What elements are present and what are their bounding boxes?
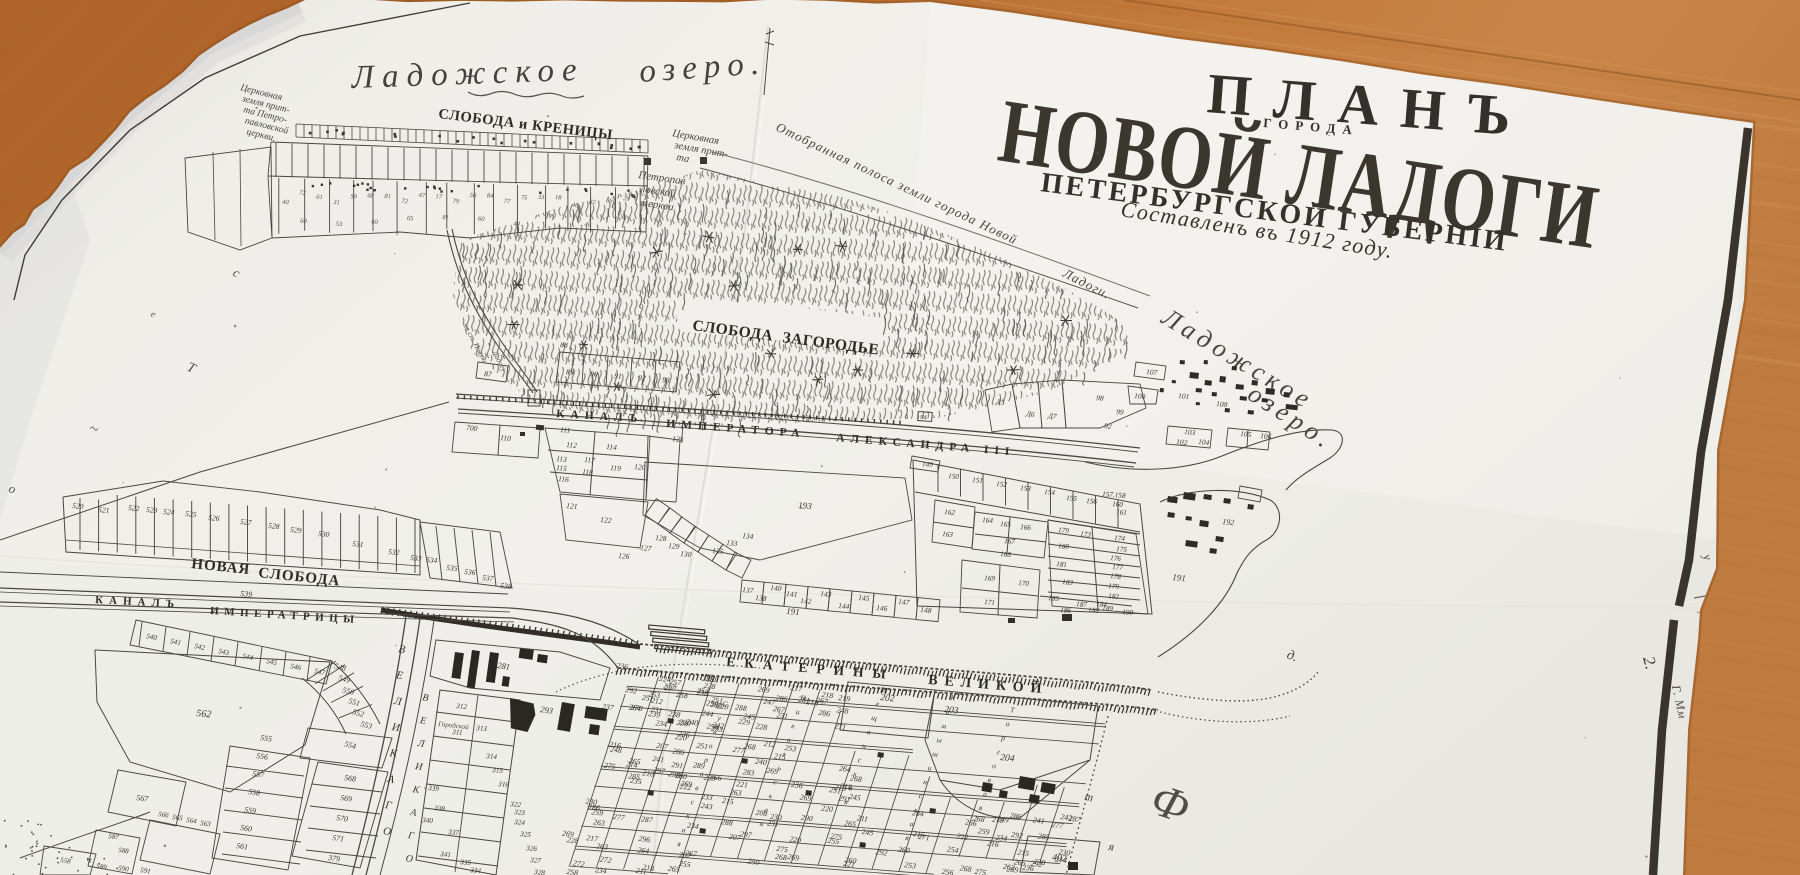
svg-text:185: 185 [1048,594,1060,603]
svg-text:253: 253 [904,860,917,871]
svg-text:188: 188 [1088,606,1100,615]
svg-text:187: 187 [1076,600,1088,609]
svg-text:Д6: Д6 [1025,409,1036,419]
svg-text:525: 525 [185,509,197,519]
svg-text:156: 156 [1086,497,1098,506]
svg-text:259: 259 [977,826,990,837]
svg-text:217: 217 [790,683,804,694]
svg-text:587: 587 [108,832,120,841]
svg-text:334: 334 [469,866,482,875]
svg-text:314: 314 [485,752,498,761]
svg-text:129: 129 [668,541,680,551]
svg-text:288: 288 [721,817,734,828]
svg-text:339: 339 [427,784,440,793]
svg-text:154: 154 [1044,488,1056,497]
svg-text:527: 527 [240,517,252,527]
svg-text:559: 559 [244,805,257,816]
svg-text:178: 178 [1110,572,1122,581]
svg-text:169: 169 [984,574,996,583]
svg-text:153: 153 [1020,484,1032,493]
svg-text:231: 231 [766,818,779,829]
svg-text:98: 98 [1096,393,1105,403]
svg-text:286: 286 [588,802,601,813]
svg-text:244: 244 [701,708,714,719]
svg-text:258: 258 [676,690,689,701]
svg-text:561: 561 [236,841,249,852]
svg-text:292: 292 [625,685,638,696]
svg-text:236: 236 [791,780,804,791]
svg-text:143: 143 [820,589,832,599]
svg-text:265: 265 [628,756,641,767]
svg-text:121: 121 [566,501,578,511]
svg-text:234: 234 [655,718,668,729]
svg-text:588: 588 [118,846,130,855]
svg-text:107: 107 [1146,367,1158,377]
svg-text:292: 292 [875,847,888,858]
svg-text:337: 337 [447,828,460,837]
svg-text:570: 570 [336,813,349,824]
svg-text:700: 700 [466,423,478,433]
svg-text:166: 166 [1020,523,1032,532]
svg-text:115: 115 [556,463,568,473]
svg-text:564: 564 [186,816,198,825]
svg-text:283: 283 [742,767,755,778]
svg-text:532: 532 [388,547,400,557]
svg-text:523: 523 [146,505,158,515]
svg-text:191: 191 [786,606,800,617]
svg-text:530: 530 [318,529,330,539]
svg-text:533: 533 [410,553,422,563]
svg-text:567: 567 [136,793,150,804]
svg-text:239: 239 [648,709,661,720]
svg-text:138: 138 [755,593,767,603]
svg-text:251: 251 [696,741,709,752]
svg-text:280: 280 [675,771,688,782]
svg-text:323: 323 [513,808,526,817]
svg-text:262: 262 [679,850,692,861]
svg-text:212: 212 [763,739,776,750]
svg-text:137: 137 [742,585,754,595]
svg-text:189: 189 [1102,604,1114,613]
svg-text:245: 245 [861,827,874,838]
svg-text:221: 221 [843,859,856,870]
svg-text:325: 325 [519,830,532,839]
svg-text:220: 220 [789,834,802,845]
svg-text:556: 556 [256,751,269,762]
svg-text:89: 89 [566,367,575,377]
svg-text:566: 566 [158,810,170,819]
svg-text:563: 563 [200,819,212,828]
svg-text:316: 316 [497,780,510,789]
svg-text:215: 215 [722,796,735,807]
svg-text:524: 524 [163,507,175,517]
svg-text:221: 221 [736,779,749,790]
svg-text:93: 93 [662,375,671,385]
svg-text:271: 271 [917,832,930,843]
svg-text:118: 118 [582,467,594,477]
svg-text:264: 264 [637,845,650,856]
svg-text:101: 101 [1178,391,1190,401]
svg-text:243: 243 [700,801,713,812]
svg-text:218: 218 [642,863,655,874]
svg-text:568: 568 [344,773,357,784]
svg-text:589: 589 [96,862,108,871]
svg-text:275: 275 [830,831,843,842]
svg-text:218: 218 [821,690,834,701]
svg-text:263: 263 [596,841,609,852]
svg-text:258: 258 [566,867,579,875]
svg-text:240: 240 [686,717,699,728]
svg-text:293: 293 [540,704,554,716]
svg-text:536: 536 [464,567,476,577]
svg-text:119: 119 [610,463,622,473]
svg-text:286: 286 [1009,811,1022,822]
svg-text:228: 228 [755,721,768,732]
svg-text:177: 177 [1112,563,1124,572]
svg-text:202: 202 [880,693,895,704]
svg-text:176: 176 [1110,554,1122,563]
svg-text:220: 220 [821,803,834,814]
svg-text:292: 292 [1011,830,1024,841]
svg-text:90: 90 [590,369,599,379]
svg-text:170: 170 [1018,579,1030,588]
svg-text:341: 341 [439,850,452,859]
svg-text:291: 291 [671,760,684,771]
svg-text:133: 133 [726,538,738,548]
svg-text:190: 190 [1122,608,1134,617]
svg-text:238: 238 [668,709,681,720]
svg-text:539: 539 [240,589,253,599]
svg-text:216: 216 [987,839,1000,850]
svg-text:269: 269 [562,829,575,840]
svg-text:241: 241 [1032,815,1045,826]
svg-text:142: 142 [800,596,812,606]
svg-text:296: 296 [638,834,651,845]
svg-text:236: 236 [1022,863,1035,874]
svg-text:535: 535 [446,563,458,573]
svg-text:104: 104 [1198,437,1210,447]
svg-text:286: 286 [818,708,831,719]
svg-text:164: 164 [982,516,994,525]
svg-text:275: 275 [974,867,987,875]
svg-text:569: 569 [340,793,353,804]
svg-text:529: 529 [290,525,302,535]
svg-text:182: 182 [1108,592,1120,601]
svg-text:179: 179 [1108,582,1120,591]
svg-text:168: 168 [1000,550,1012,559]
svg-text:61: 61 [316,194,323,202]
svg-text:590: 590 [118,864,130,873]
svg-text:145: 145 [858,593,870,603]
svg-text:379: 379 [327,853,341,864]
svg-text:147: 147 [898,597,910,607]
svg-text:Д7: Д7 [1047,411,1058,421]
svg-text:402: 402 [1052,853,1067,864]
svg-text:263: 263 [593,817,606,828]
svg-text:241: 241 [652,754,665,765]
svg-text:521: 521 [98,505,110,515]
svg-text:312: 312 [455,702,468,711]
svg-text:255: 255 [678,859,691,870]
svg-text:117: 117 [584,455,596,465]
svg-text:269: 269 [787,852,800,863]
svg-text:130: 130 [680,549,692,559]
svg-text:222: 222 [956,831,969,842]
svg-text:161: 161 [1116,508,1127,517]
svg-text:191: 191 [1172,572,1186,583]
svg-text:108: 108 [1216,399,1228,409]
svg-text:591: 591 [140,866,152,875]
svg-text:240: 240 [755,757,768,768]
svg-text:162: 162 [944,508,956,517]
svg-text:565: 565 [172,813,184,822]
svg-text:167: 167 [1004,537,1016,546]
svg-text:216: 216 [609,740,622,751]
svg-text:315: 315 [491,766,504,775]
svg-text:211: 211 [856,813,868,823]
svg-text:528: 528 [268,521,280,531]
svg-text:175: 175 [1116,545,1128,554]
svg-text:123: 123 [672,434,684,444]
svg-text:281: 281 [497,660,511,672]
svg-text:81: 81 [442,214,449,222]
svg-text:144: 144 [838,601,850,611]
svg-text:272: 272 [599,854,612,865]
svg-text:31: 31 [332,199,340,207]
svg-text:171: 171 [984,598,995,607]
svg-text:534: 534 [426,555,438,565]
svg-text:268: 268 [743,741,756,752]
svg-text:151: 151 [972,476,983,485]
svg-text:100: 100 [1134,391,1146,401]
svg-text:140: 140 [770,583,782,593]
svg-text:537: 537 [482,573,494,583]
svg-text:262: 262 [1002,862,1015,873]
svg-text:558: 558 [248,787,261,798]
svg-text:183: 183 [1062,578,1074,587]
svg-text:250: 250 [747,856,760,867]
svg-text:558: 558 [60,856,72,865]
svg-text:81: 81 [384,193,391,201]
svg-text:571: 571 [332,833,345,844]
svg-text:275: 275 [776,844,789,855]
svg-text:186: 186 [1060,606,1072,615]
svg-text:155: 155 [1066,494,1078,503]
svg-text:134: 134 [742,531,754,541]
svg-text:313: 313 [475,724,488,733]
svg-text:122: 122 [600,515,612,525]
svg-text:149: 149 [922,460,934,469]
svg-text:265: 265 [667,864,680,875]
svg-text:268: 268 [959,863,972,874]
svg-text:290: 290 [800,813,813,824]
svg-text:260: 260 [897,845,910,856]
svg-text:180: 180 [1058,542,1070,551]
svg-text:92: 92 [1104,421,1113,431]
svg-text:268: 268 [972,814,985,825]
svg-text:179: 179 [1058,526,1070,535]
svg-text:275: 275 [603,761,616,772]
svg-text:265: 265 [844,818,857,829]
svg-text:234: 234 [687,821,700,832]
svg-text:526: 526 [208,513,220,523]
svg-text:181: 181 [1056,560,1067,569]
svg-text:114: 114 [606,442,618,452]
svg-text:327: 327 [529,856,542,865]
svg-text:254: 254 [696,686,709,697]
svg-text:229: 229 [703,773,716,784]
svg-text:245: 245 [743,711,756,722]
svg-text:88: 88 [560,340,569,350]
svg-text:338: 338 [433,804,446,813]
svg-text:203: 203 [944,705,959,716]
svg-text:538: 538 [500,581,512,591]
svg-text:116: 116 [558,474,570,484]
svg-text:531: 531 [352,539,364,549]
svg-text:324: 324 [513,818,526,827]
svg-text:285: 285 [628,771,641,782]
svg-text:204: 204 [1000,753,1015,764]
svg-text:193: 193 [798,500,813,511]
svg-text:165: 165 [1000,520,1012,529]
svg-text:218: 218 [806,697,819,708]
svg-text:110: 110 [500,433,512,443]
svg-text:126: 126 [618,551,630,561]
svg-text:251: 251 [705,674,718,685]
svg-text:163: 163 [942,530,954,539]
svg-text:522: 522 [128,503,140,513]
svg-text:127: 127 [640,543,652,553]
svg-text:340: 340 [421,816,434,825]
svg-text:111: 111 [560,425,571,435]
svg-text:146: 146 [876,603,888,613]
svg-text:236: 236 [616,661,629,672]
svg-text:256: 256 [941,867,954,875]
svg-text:270: 270 [630,703,643,714]
svg-text:286: 286 [672,746,685,757]
svg-text:Д5: Д5 [995,397,1006,407]
svg-text:562: 562 [196,708,212,721]
svg-text:234: 234 [594,865,607,875]
svg-text:220: 220 [675,732,688,743]
svg-text:92: 92 [638,373,647,383]
svg-text:141: 141 [786,589,798,599]
svg-text:326: 326 [525,844,538,853]
svg-text:237: 237 [664,683,678,694]
svg-text:269: 269 [757,684,770,695]
svg-text:328: 328 [533,868,546,875]
svg-text:254: 254 [946,844,959,855]
svg-text:128: 128 [655,533,667,543]
svg-text:173: 173 [1080,530,1092,539]
svg-text:264: 264 [839,764,852,775]
svg-text:99: 99 [1116,407,1125,417]
svg-text:520: 520 [72,501,84,511]
svg-text:150: 150 [948,472,960,481]
svg-text:560: 560 [240,823,253,834]
svg-text:112: 112 [566,440,578,450]
svg-text:238: 238 [1033,857,1046,868]
svg-text:87: 87 [484,369,493,379]
svg-text:192: 192 [1222,517,1235,527]
svg-text:286: 286 [775,693,788,704]
svg-text:253: 253 [648,690,661,701]
svg-text:152: 152 [996,480,1008,489]
svg-text:555: 555 [260,733,273,744]
svg-text:91: 91 [614,371,622,381]
svg-text:та: та [675,152,690,165]
svg-text:251: 251 [829,785,842,796]
svg-text:174: 174 [1114,534,1126,543]
